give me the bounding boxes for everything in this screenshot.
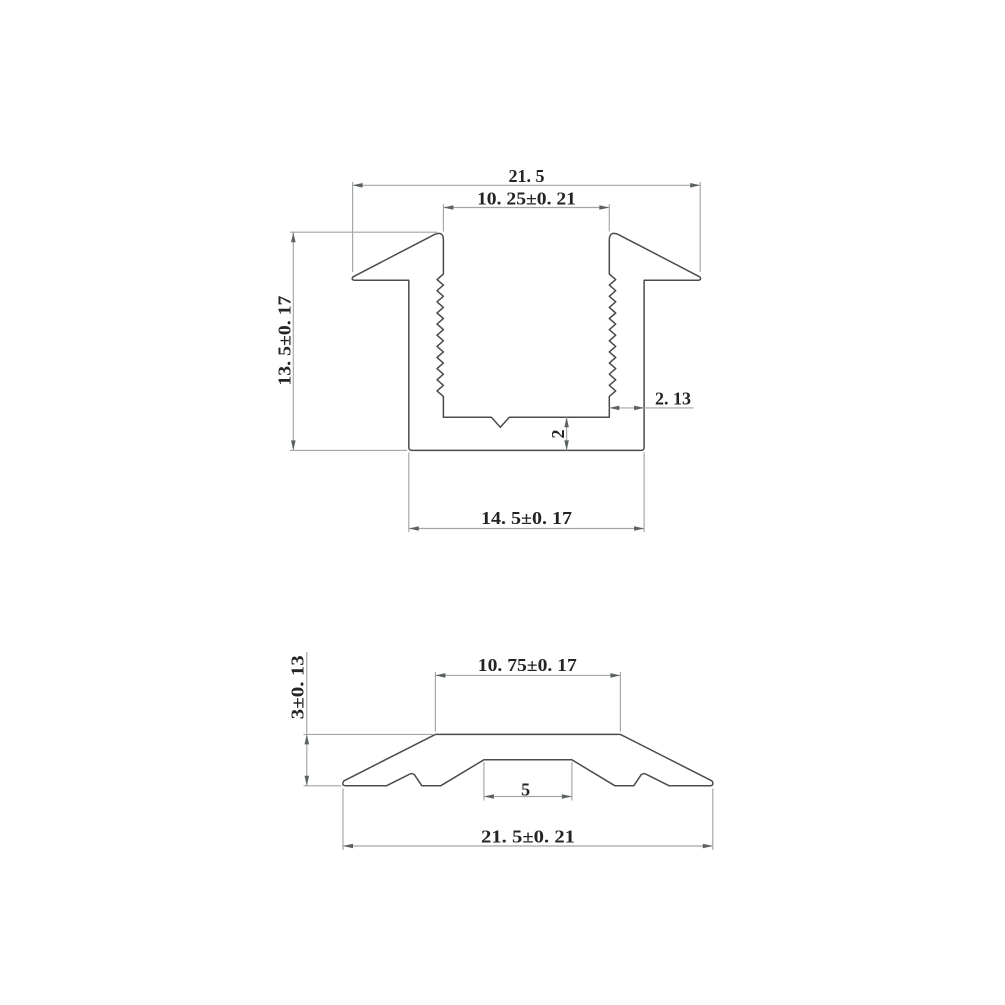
svg-text:10. 25±0. 21: 10. 25±0. 21	[477, 188, 576, 208]
svg-text:10. 75±0. 17: 10. 75±0. 17	[478, 655, 577, 675]
svg-text:14. 5±0. 17: 14. 5±0. 17	[481, 508, 572, 528]
svg-text:3±0. 13: 3±0. 13	[287, 655, 307, 719]
svg-text:21. 5±0. 21: 21. 5±0. 21	[481, 826, 575, 846]
svg-text:2. 13: 2. 13	[655, 388, 691, 408]
svg-text:21. 5: 21. 5	[509, 166, 545, 186]
svg-text:2: 2	[548, 430, 568, 439]
svg-text:13. 5±0. 17: 13. 5±0. 17	[274, 296, 294, 386]
